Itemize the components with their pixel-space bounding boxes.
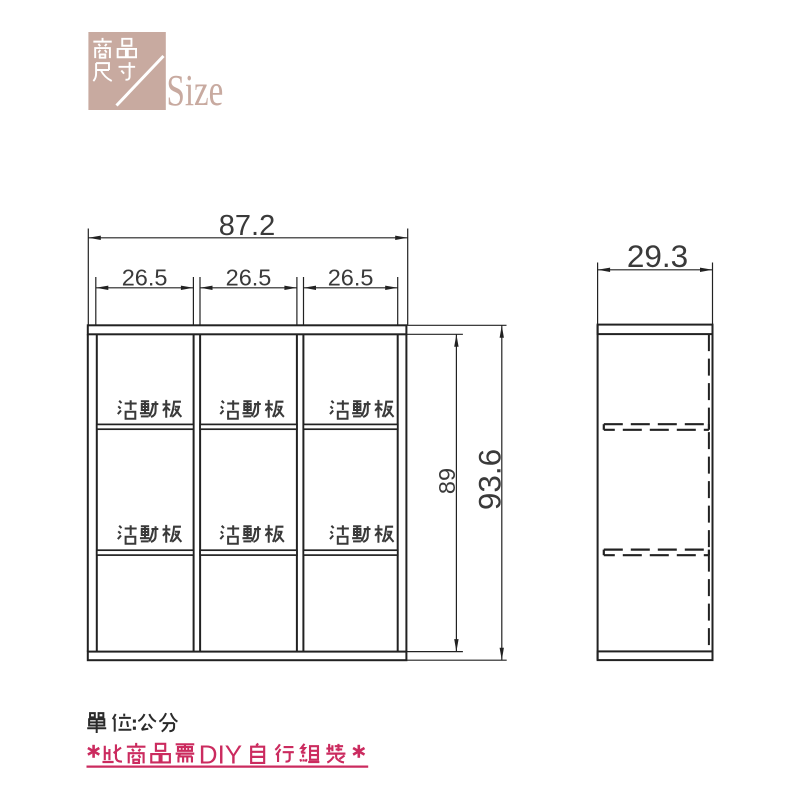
svg-text:93.6: 93.6 — [472, 449, 508, 510]
svg-text:Size: Size — [167, 66, 224, 115]
svg-text:87.2: 87.2 — [219, 210, 275, 242]
svg-text:89: 89 — [434, 468, 460, 494]
svg-text:26.5: 26.5 — [328, 265, 374, 291]
svg-text:29.3: 29.3 — [627, 238, 688, 274]
svg-text:26.5: 26.5 — [122, 265, 168, 291]
svg-text:26.5: 26.5 — [226, 265, 272, 291]
svg-text:DIY: DIY — [199, 739, 242, 769]
